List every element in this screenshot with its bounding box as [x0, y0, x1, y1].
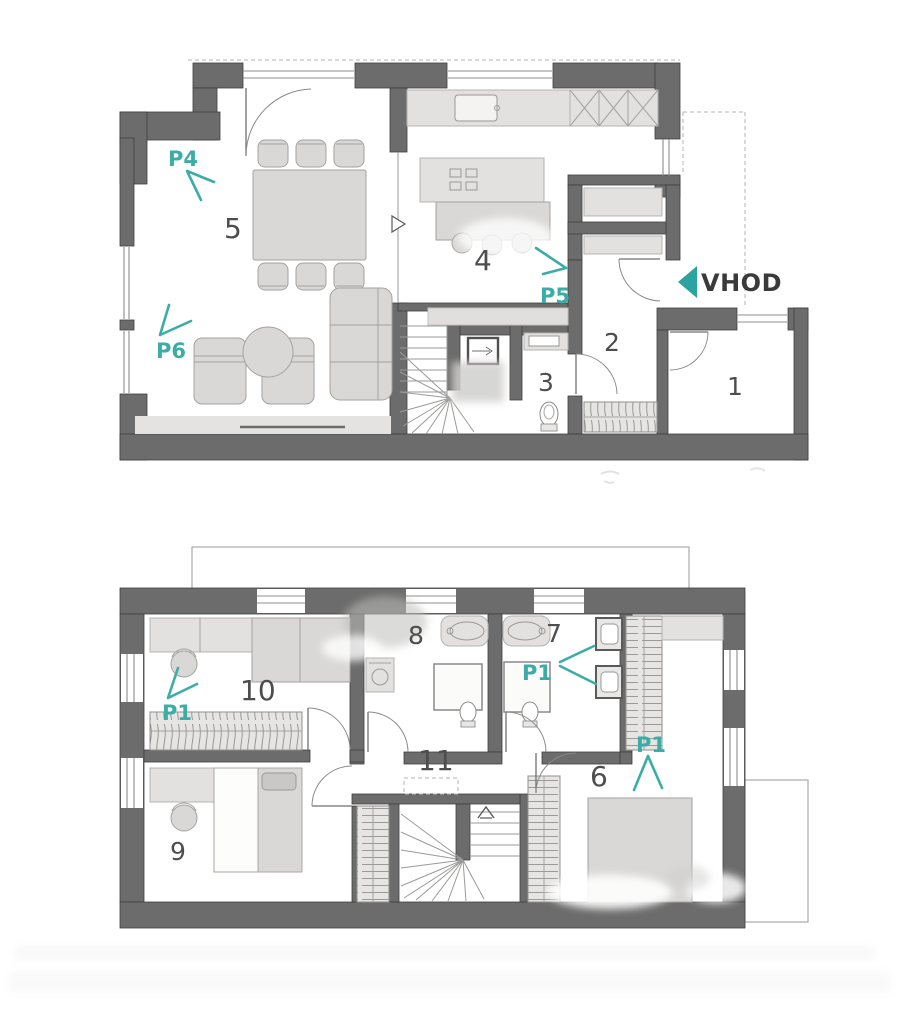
- room-label-7: 7: [546, 619, 562, 648]
- door-room9: [312, 766, 352, 806]
- marker-p5: P5: [540, 284, 570, 308]
- room-label-1: 1: [727, 372, 743, 401]
- kitchen-island: [420, 158, 554, 258]
- desk-chair: [171, 651, 197, 677]
- terrace-door-sill: [135, 416, 391, 434]
- watermark-smudge: [458, 218, 554, 258]
- pantry-shelves: [584, 188, 662, 254]
- floor-plan-image: VHOD: [0, 0, 907, 1011]
- pillow: [262, 773, 296, 790]
- roof-outline: [192, 547, 689, 588]
- chair-room9: [171, 805, 197, 831]
- shower8: [434, 664, 482, 710]
- bathtub7: [503, 616, 550, 646]
- door-stairhall: [576, 354, 617, 394]
- marker-p1-bathroom7: P1: [522, 661, 552, 685]
- door-room10: [308, 708, 350, 750]
- coffee-table: [243, 327, 293, 377]
- watermark-band: [15, 946, 875, 960]
- room-label-6: 6: [590, 760, 608, 793]
- watermark-band: [10, 972, 890, 992]
- marker-p1-bedroom10: P1: [162, 701, 192, 725]
- room-label-4: 4: [474, 244, 492, 277]
- door-room1: [670, 332, 708, 370]
- marker-p1-bedroom6-arrow: [634, 756, 662, 790]
- upper-floor-plan: VHOD: [120, 60, 808, 483]
- watermark-smudge: [666, 866, 710, 890]
- balcony-outline: [745, 780, 808, 922]
- lower-floor-plan: 10 8 7 11 6 9 P1 P1 P1: [120, 547, 808, 928]
- wardrobe-hall: [584, 402, 657, 432]
- room-label-8: 8: [408, 621, 424, 650]
- entrance-door: [619, 259, 660, 301]
- marker-p6: P6: [156, 339, 186, 363]
- watermark-smudge: [750, 468, 765, 471]
- entrance-label: VHOD: [701, 269, 782, 297]
- room-label-3: 3: [538, 368, 554, 397]
- closet-shelf: [662, 616, 723, 640]
- kitchen-counter: [407, 90, 570, 126]
- entrance-arrow-icon: [678, 266, 697, 298]
- bathtub8: [441, 616, 488, 646]
- dining-table: [253, 140, 366, 290]
- closet-kitchen: [570, 90, 658, 126]
- room-label-11: 11: [418, 744, 454, 777]
- marker-p6-arrow: [160, 305, 191, 335]
- marker-p5-arrow: [536, 248, 566, 274]
- watermark-smudge: [322, 635, 382, 661]
- marker-p1-bathroom7-arrow: [560, 646, 596, 684]
- room-label-9: 9: [170, 837, 186, 866]
- hall-dashed-recess: [404, 778, 458, 794]
- watermark-smudge: [548, 875, 672, 909]
- toilet7: [522, 702, 538, 722]
- marker-p4: P4: [168, 147, 198, 171]
- room-label-10: 10: [240, 674, 276, 707]
- stairs-lower: [357, 806, 520, 902]
- marker-p4-arrow: [187, 171, 214, 200]
- sofa: [330, 288, 392, 400]
- room-label-5: 5: [224, 212, 242, 245]
- toilet8: [460, 702, 476, 722]
- watermark-smudge: [452, 362, 504, 402]
- bathroom7-fixtures: [503, 616, 622, 727]
- toilet: [540, 402, 558, 426]
- marker-p1-bedroom6: P1: [636, 733, 666, 757]
- room-label-2: 2: [604, 328, 620, 357]
- door-bathroom8: [368, 712, 408, 752]
- watermark-smudge: [601, 472, 619, 483]
